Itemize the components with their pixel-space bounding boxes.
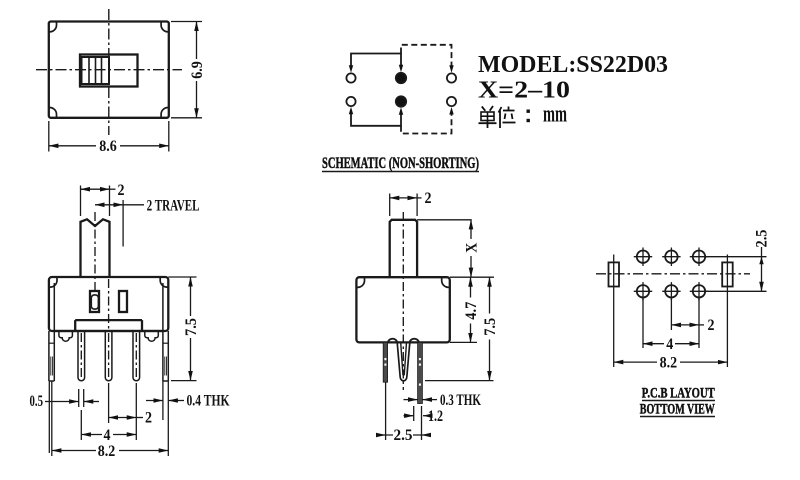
svg-text:MODEL:SS22D03: MODEL:SS22D03	[478, 52, 668, 78]
svg-text:1.2: 1.2	[428, 408, 443, 425]
svg-text:4.7: 4.7	[463, 302, 480, 320]
svg-text:BOTTOM VIEW: BOTTOM VIEW	[640, 402, 715, 418]
svg-text:0.3 THK: 0.3 THK	[440, 392, 481, 409]
svg-text:2: 2	[708, 317, 715, 334]
svg-text:4: 4	[104, 427, 111, 444]
svg-text:8.2: 8.2	[98, 443, 116, 460]
svg-text:2.5: 2.5	[754, 230, 771, 248]
svg-text:2: 2	[425, 190, 432, 207]
svg-text:4: 4	[666, 336, 673, 353]
svg-text:2: 2	[145, 410, 152, 427]
svg-text:8.2: 8.2	[660, 354, 678, 371]
svg-text:0.4 THK: 0.4 THK	[187, 393, 230, 410]
svg-text:2: 2	[118, 182, 125, 199]
svg-text:7.5: 7.5	[482, 318, 499, 336]
svg-text:mm: mm	[543, 102, 567, 128]
svg-text:SCHEMATIC (NON-SHORTING): SCHEMATIC (NON-SHORTING)	[322, 155, 479, 172]
svg-text:X: X	[463, 242, 480, 252]
svg-text:6.9: 6.9	[189, 61, 206, 79]
svg-text:X=2–10: X=2–10	[478, 78, 570, 104]
svg-text:7.5: 7.5	[183, 318, 200, 336]
svg-text:2.5: 2.5	[394, 427, 413, 444]
svg-text:8.6: 8.6	[99, 138, 117, 155]
svg-text:2 TRAVEL: 2 TRAVEL	[147, 197, 200, 214]
svg-text:P.C.B LAYOUT: P.C.B LAYOUT	[642, 386, 715, 402]
svg-text:0.5: 0.5	[30, 393, 44, 410]
